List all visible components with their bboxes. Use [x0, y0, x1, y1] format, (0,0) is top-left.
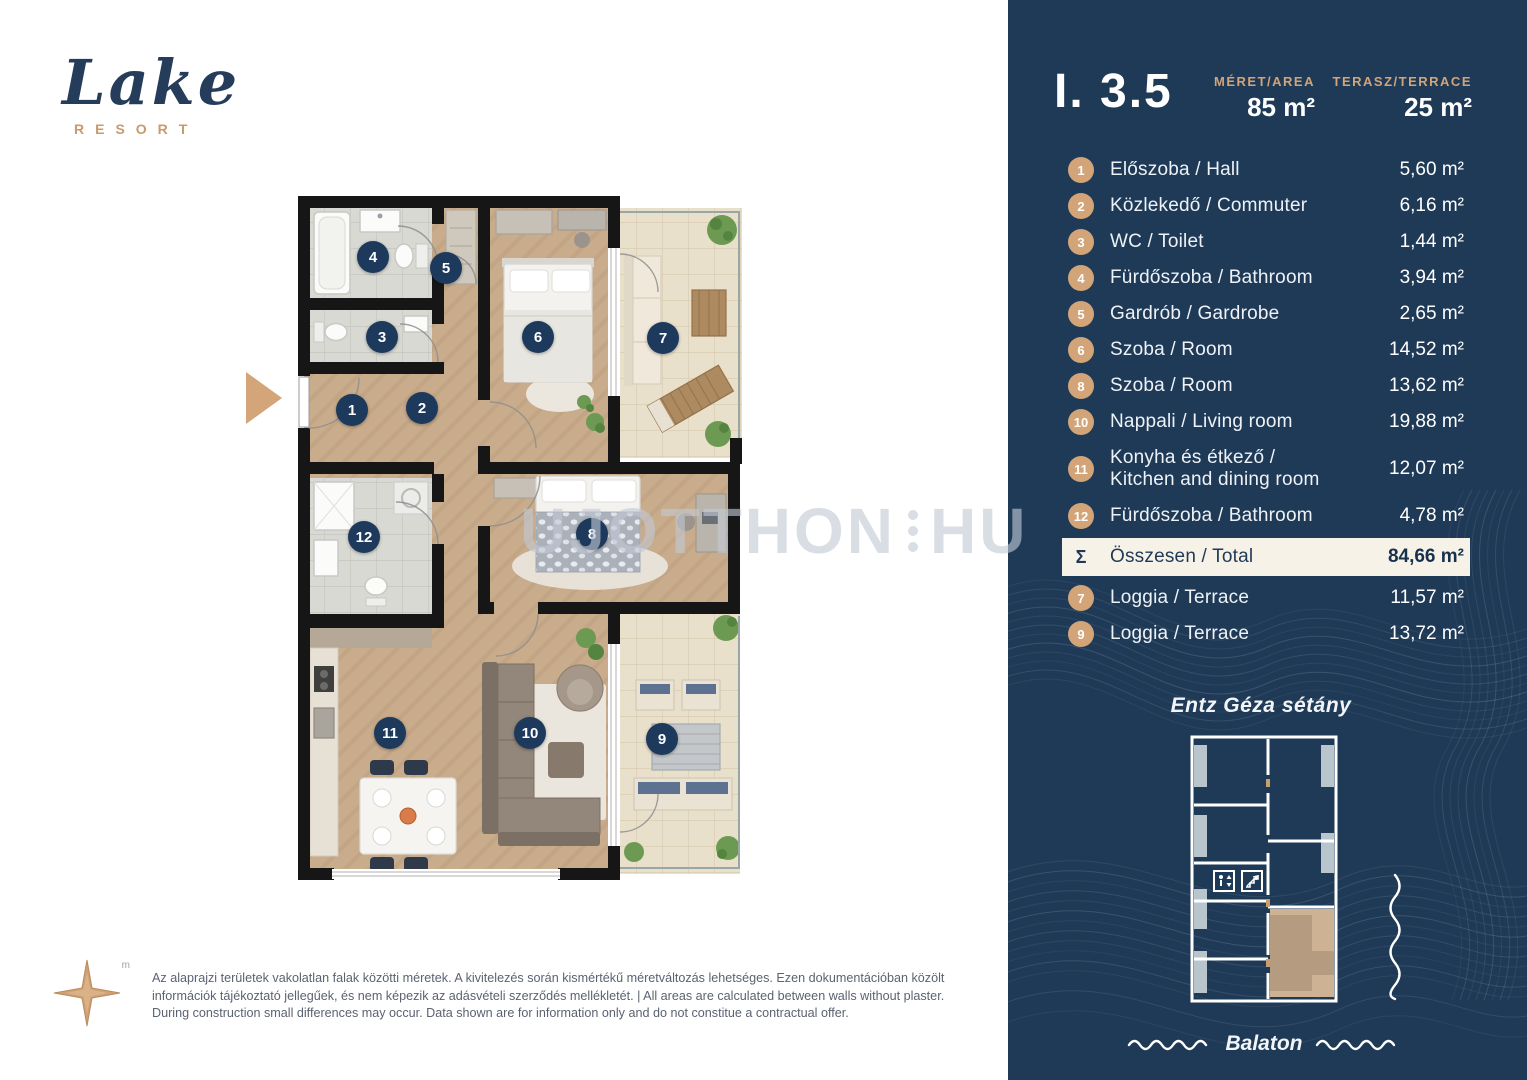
room-number-badge: 6: [1068, 337, 1094, 363]
room-area: 11,57 m²: [1390, 587, 1464, 609]
watermark-dots-icon: [908, 510, 918, 552]
balaton-row: Balaton: [1104, 1032, 1424, 1056]
room-row: 1 Előszoba / Hall 5,60 m²: [1068, 152, 1464, 188]
disclaimer-text: Az alaprajzi területek vakolatlan falak …: [152, 970, 958, 1023]
unit-id: I. 3.5: [1054, 64, 1173, 119]
brochure-page: { "logo": { "name": "Lake", "subtitle": …: [0, 0, 1527, 1080]
area-value: 85 m²: [1214, 92, 1315, 123]
floor-plan: 123456781211109: [298, 196, 746, 884]
terrace-rows: 7 Loggia / Terrace 11,57 m² 9 Loggia / T…: [1068, 580, 1464, 652]
room-row: 9 Loggia / Terrace 13,72 m²: [1068, 616, 1464, 652]
plan-room-badge: 9: [646, 723, 678, 755]
room-area: 1,44 m²: [1400, 231, 1464, 253]
room-name: Fürdőszoba / Bathroom: [1110, 505, 1400, 527]
room-number-badge: 11: [1068, 456, 1094, 482]
room-row: 5 Gardrób / Gardrobe 2,65 m²: [1068, 296, 1464, 332]
room-area: 14,52 m²: [1389, 339, 1464, 361]
room-row: 12 Fürdőszoba / Bathroom 4,78 m²: [1068, 498, 1464, 534]
room-name: Fürdőszoba / Bathroom: [1110, 267, 1400, 289]
logo-wordmark: Lake: [62, 46, 240, 119]
room-number-badge: 1: [1068, 157, 1094, 183]
logo-subtitle: RESORT: [74, 121, 240, 137]
room-area: 12,07 m²: [1389, 458, 1464, 480]
terrace-label: TERASZ/TERRACE: [1333, 74, 1472, 89]
room-name: WC / Toilet: [1110, 231, 1400, 253]
room-area: 13,72 m²: [1389, 623, 1464, 645]
room-row: 2 Közlekedő / Commuter 6,16 m²: [1068, 188, 1464, 224]
room-row: 10 Nappali / Living room 19,88 m²: [1068, 404, 1464, 440]
room-row: 4 Fürdőszoba / Bathroom 3,94 m²: [1068, 260, 1464, 296]
room-area: 3,94 m²: [1400, 267, 1464, 289]
room-name: Szoba / Room: [1110, 375, 1389, 397]
room-number-badge: 10: [1068, 409, 1094, 435]
plan-room-badge: 1: [336, 394, 368, 426]
plan-room-badge: 10: [514, 717, 546, 749]
wave-mark-left-icon: [1127, 1037, 1213, 1051]
plan-room-badge: 6: [522, 321, 554, 353]
room-name: Loggia / Terrace: [1110, 587, 1390, 609]
room-name: Előszoba / Hall: [1110, 159, 1400, 181]
room-number-badge: 2: [1068, 193, 1094, 219]
wave-mark-vertical-icon: [1386, 873, 1404, 1003]
room-area: 5,60 m²: [1400, 159, 1464, 181]
room-area: 2,65 m²: [1400, 303, 1464, 325]
area-label: MÉRET/AREA: [1214, 74, 1315, 89]
entrance-arrow-icon: [246, 372, 282, 424]
plan-room-badge: 11: [374, 717, 406, 749]
room-name: Közlekedő / Commuter: [1110, 195, 1400, 217]
room-area: 6,16 m²: [1400, 195, 1464, 217]
plan-room-badge: 4: [357, 241, 389, 273]
water-label: Balaton: [1225, 1032, 1302, 1056]
room-name: Nappali / Living room: [1110, 411, 1389, 433]
room-row: 6 Szoba / Room 14,52 m²: [1068, 332, 1464, 368]
room-number-badge: 5: [1068, 301, 1094, 327]
total-name: Összesen / Total: [1110, 546, 1388, 568]
room-number-badge: 8: [1068, 373, 1094, 399]
lake-resort-logo: Lake RESORT: [62, 46, 240, 137]
street-label: Entz Géza sétány: [1096, 694, 1426, 718]
site-plan: [1190, 735, 1338, 1003]
room-number-badge: 12: [1068, 503, 1094, 529]
room-number-badge: 4: [1068, 265, 1094, 291]
room-number-badge: 9: [1068, 621, 1094, 647]
room-row: 3 WC / Toilet 1,44 m²: [1068, 224, 1464, 260]
room-row: 8 Szoba / Room 13,62 m²: [1068, 368, 1464, 404]
room-number-badge: 3: [1068, 229, 1094, 255]
total-area: 84,66 m²: [1388, 546, 1464, 568]
room-area: 19,88 m²: [1389, 411, 1464, 433]
room-name: Loggia / Terrace: [1110, 623, 1389, 645]
plan-room-badge: 12: [348, 521, 380, 553]
compass-mark: m: [122, 960, 130, 971]
room-name: Szoba / Room: [1110, 339, 1389, 361]
room-row: 7 Loggia / Terrace 11,57 m²: [1068, 580, 1464, 616]
plan-room-badge: 8: [576, 518, 608, 550]
total-row: Σ Összesen / Total 84,66 m²: [1062, 538, 1470, 576]
room-area: 13,62 m²: [1389, 375, 1464, 397]
room-name: Konyha és étkező /Kitchen and dining roo…: [1110, 447, 1389, 491]
plan-room-badge: 2: [406, 392, 438, 424]
sigma-icon: Σ: [1068, 544, 1094, 570]
room-area: 4,78 m²: [1400, 505, 1464, 527]
plan-room-badge: 3: [366, 321, 398, 353]
area-stat: MÉRET/AREA 85 m²: [1214, 74, 1315, 123]
room-row: 11 Konyha és étkező /Kitchen and dining …: [1068, 440, 1464, 498]
compass-rose-icon: m: [52, 958, 130, 1028]
terrace-value: 25 m²: [1333, 92, 1472, 123]
info-sidebar: I. 3.5 MÉRET/AREA 85 m² TERASZ/TERRACE 2…: [1008, 0, 1527, 1080]
room-number-badge: 7: [1068, 585, 1094, 611]
wave-mark-right-icon: [1315, 1037, 1401, 1051]
room-list: 1 Előszoba / Hall 5,60 m² 2 Közlekedő / …: [1068, 152, 1464, 652]
plan-room-badge: 5: [430, 252, 462, 284]
room-name: Gardrób / Gardrobe: [1110, 303, 1400, 325]
room-rows: 1 Előszoba / Hall 5,60 m² 2 Közlekedő / …: [1068, 152, 1464, 534]
terrace-stat: TERASZ/TERRACE 25 m²: [1333, 74, 1472, 123]
plan-room-badge: 7: [647, 322, 679, 354]
